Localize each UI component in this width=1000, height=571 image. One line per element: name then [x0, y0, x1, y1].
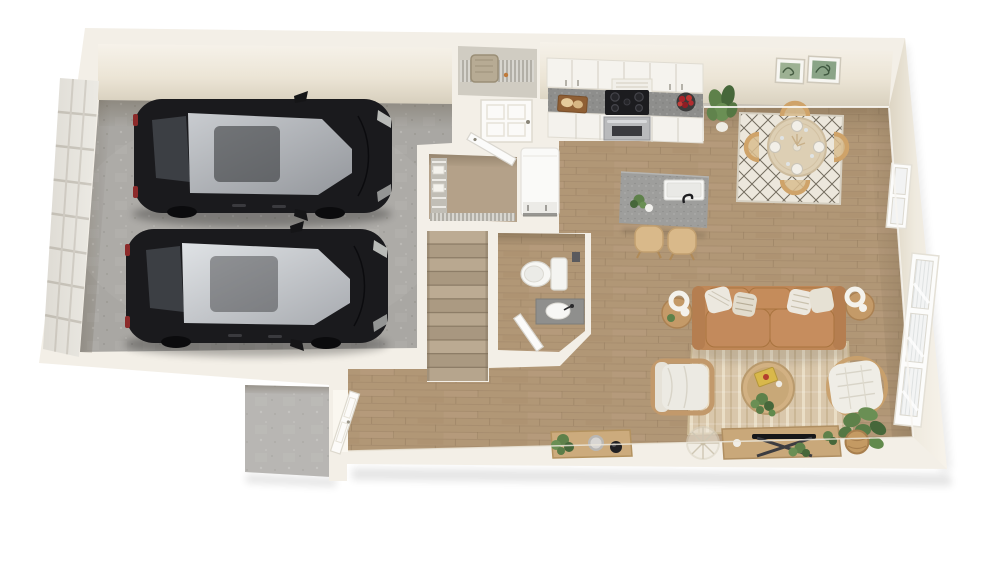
- mug: [645, 204, 653, 212]
- wire-shelf-bottom: [430, 213, 515, 221]
- cooktop-range: [605, 90, 649, 115]
- car-taillight: [133, 186, 138, 198]
- media-console: [722, 426, 841, 459]
- dining-chair-top: [782, 103, 808, 116]
- island-sink: [664, 180, 704, 203]
- garage-entry-door: [481, 100, 532, 142]
- wall-art-1: [775, 58, 804, 83]
- sofa-armrest-right: [833, 286, 846, 350]
- car-wheel: [167, 206, 197, 218]
- armchair-left: [653, 361, 712, 413]
- dining-chair-left: [746, 134, 759, 160]
- staircase: [427, 231, 488, 381]
- car-1: [133, 91, 392, 221]
- toilet-paper-holder: [572, 252, 580, 262]
- cutting-board: [557, 95, 587, 113]
- throw-pillow: [808, 286, 835, 314]
- vanity-sink: [536, 299, 584, 324]
- car-sunroof: [214, 126, 280, 182]
- car-wheel: [311, 337, 341, 349]
- car-rear-window: [152, 116, 190, 182]
- throw-pillow: [731, 291, 758, 318]
- car-rear-window: [146, 246, 184, 312]
- woven-basket: [846, 431, 869, 454]
- garage-north-wall-face: [98, 44, 452, 104]
- sofa: [692, 285, 846, 350]
- sofa-seat-cushion: [770, 309, 834, 347]
- dining-chair-right: [834, 134, 847, 160]
- car-taillight: [125, 244, 130, 256]
- car-sunroof: [210, 256, 278, 312]
- car-wheel: [161, 336, 191, 348]
- car-2: [125, 221, 388, 351]
- small-plant: [667, 314, 675, 322]
- door-knob: [526, 120, 530, 124]
- car-wheel: [315, 207, 345, 219]
- powder-room-floor: [498, 233, 585, 352]
- rattan-armchair-right: [827, 358, 886, 416]
- black-bowl: [610, 441, 622, 453]
- floor-plan-rendering: [0, 0, 1000, 571]
- concrete-stoop: [245, 385, 331, 477]
- oven: [604, 117, 650, 140]
- wall-art-2: [807, 56, 840, 84]
- valve-knob: [504, 73, 508, 77]
- car-taillight: [125, 316, 130, 328]
- floor-plan-stage: [0, 0, 1000, 571]
- car-taillight: [133, 114, 138, 126]
- dining-chair-bottom: [782, 180, 808, 193]
- dining-table: [768, 118, 826, 176]
- sofa-armrest-left: [692, 286, 705, 350]
- refrigerator: [521, 148, 559, 217]
- water-heater: [471, 55, 498, 82]
- vase: [776, 381, 782, 387]
- decor-object: [733, 439, 741, 447]
- toilet: [521, 258, 567, 290]
- fruit-bowl: [677, 93, 696, 112]
